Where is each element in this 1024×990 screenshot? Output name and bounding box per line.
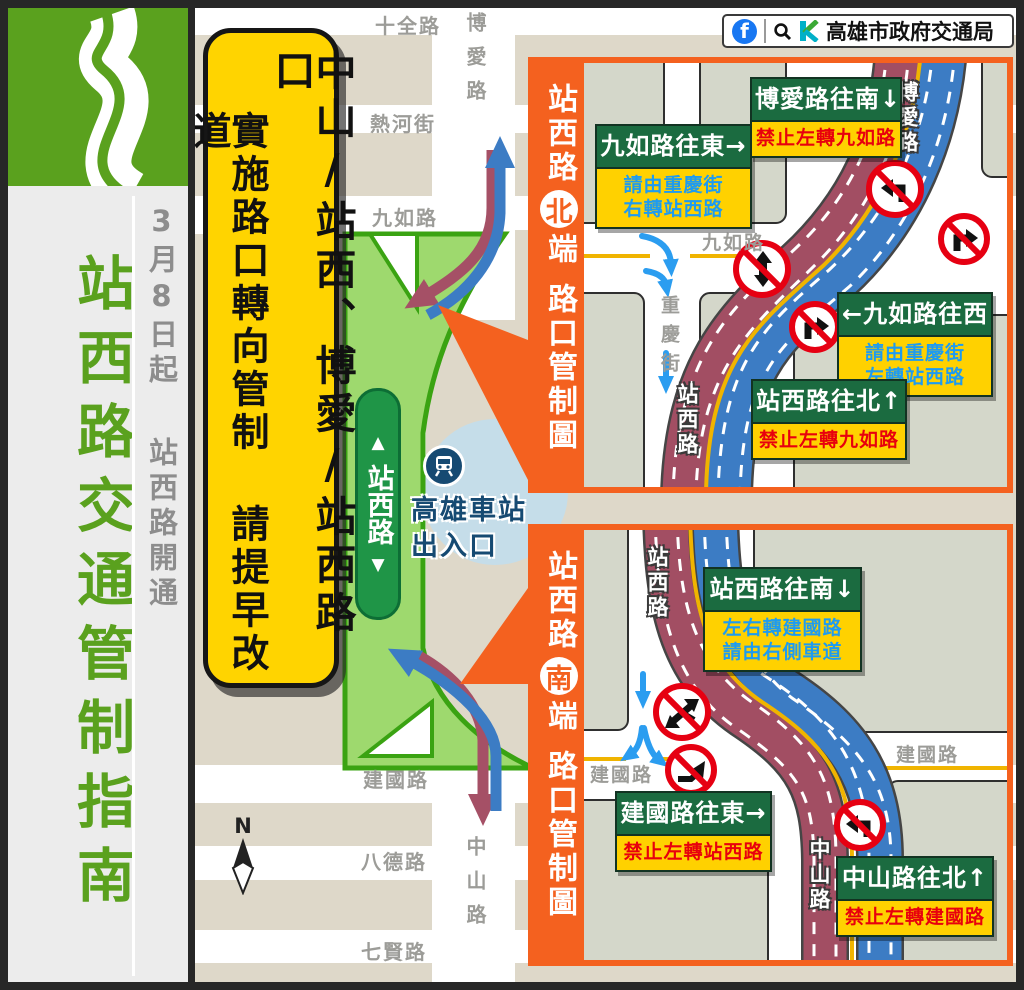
inset-south-circle-south: 南 [540, 657, 578, 695]
inset-south-suffix: 路口管制圖 [544, 750, 574, 920]
road-label-jiuru: 九如路 [372, 202, 438, 231]
south-jianguo-east-label: 建國路 [896, 740, 959, 767]
train-station-icon [423, 445, 465, 487]
inset-north-end: 端 [544, 233, 574, 267]
no-left-turn-sign-south [837, 802, 883, 848]
no-right-turn-sign [941, 216, 987, 262]
bureau-k-logo-icon [799, 20, 819, 42]
no-right-turn-sign-2 [792, 304, 838, 350]
sign-boai-south: 博愛路往南↓ 禁止左轉九如路 [750, 77, 902, 158]
agency-name: 高雄市政府交通局 [826, 16, 994, 46]
south-zhanxi-label: 站西路 [642, 546, 672, 621]
compass: N [221, 816, 265, 895]
inset-south-banner: 站西路 南 端 路口管制圖 [534, 530, 584, 960]
north-zhanxi-label: 站西路 [672, 383, 702, 458]
road-label-bade: 八德路 [361, 846, 427, 875]
south-zhongshan-label: 中山路 [804, 838, 834, 913]
zhanxi-sign-text: 站西路 [365, 464, 392, 545]
sign-jianguo-east: 建國路往東→ 禁止左轉站西路 [615, 791, 772, 872]
up-arrow-icon: ▲ [371, 435, 384, 452]
inset-north-road: 站西路 [544, 83, 574, 185]
road-label-boai: 博愛路 [461, 12, 490, 114]
road-label-rehe: 熱河街 [370, 108, 436, 137]
no-left-from-jianguo-sign [668, 747, 714, 793]
road-label-qixian: 七賢路 [361, 936, 427, 965]
station-label-line1: 高雄車站 [411, 488, 527, 527]
zhanxi-road-sign: ▲ 站西路 ▼ [355, 388, 401, 620]
notice-line-1: 中山/站西、博愛/站西路口 [270, 49, 352, 683]
inset-south-road: 站西路 [544, 550, 574, 652]
date-text: 3月8日起 [141, 204, 183, 389]
notice-banner: 中山/站西、博愛/站西路口 實施路口轉向管制 請提早改道 [203, 28, 339, 688]
inset-north-map: 九如路 重慶街 博愛路 站西路 九如路往東→ 請由重慶街 右轉站西路 博愛路往南… [584, 63, 1007, 487]
inset-north: 站西路 北 端 路口管制圖 [528, 57, 1013, 493]
inset-south-end: 端 [544, 700, 574, 734]
sign-zhanxi-south: 站西路往南↓ 左右轉建國路 請由右側車道 [703, 567, 862, 672]
compass-needle-icon [230, 837, 256, 895]
compass-n-label: N [234, 816, 252, 837]
road-label-jianguo: 建國路 [363, 764, 429, 793]
north-jiuru-label: 九如路 [702, 228, 765, 255]
inset-south: 站西路 南 端 路口管制圖 [528, 524, 1013, 966]
open-note-text: 站西路開通 [141, 437, 183, 612]
sidebar: 站西路交通管制指南 3月8日起 站西路開通 [8, 8, 188, 982]
header-divider [764, 19, 766, 43]
inset-north-circle-north: 北 [540, 190, 578, 228]
search-icon[interactable] [773, 22, 792, 41]
sign-zhanxi-north: 站西路往北↑ 禁止左轉九如路 [751, 379, 907, 460]
road-logo-icon [8, 8, 188, 186]
poster-title: 站西路交通管制指南 [8, 196, 130, 976]
date-note: 3月8日起 站西路開通 [135, 204, 188, 974]
north-chongqing-label: 重慶街 [656, 295, 683, 382]
south-jianguo-west-label: 建國路 [590, 760, 653, 787]
inset-north-banner: 站西路 北 端 路口管制圖 [534, 63, 584, 487]
sign-zhongshan-north: 中山路往北↑ 禁止左轉建國路 [836, 856, 994, 937]
station-label-line2: 出入口 [411, 524, 498, 563]
road-label-zhongshan: 中山路 [461, 836, 490, 938]
inset-north-suffix: 路口管制圖 [544, 283, 574, 453]
inset-south-map: 站西路 建國路 建國路 中山路 站西路往南↓ 左右轉建國路 請由右側車道 建國路… [584, 530, 1007, 960]
social-header: f 高雄市政府交通局 [722, 14, 1014, 48]
sign-jiuru-east: 九如路往東→ 請由重慶街 右轉站西路 [595, 124, 752, 229]
poster: 站西路交通管制指南 3月8日起 站西路開通 [0, 0, 1024, 990]
no-through-left-sign [656, 686, 708, 738]
road-label-shiquan: 十全路 [375, 10, 441, 39]
down-arrow-icon: ▼ [371, 557, 384, 574]
no-left-turn-sign [869, 163, 921, 215]
facebook-icon[interactable]: f [732, 19, 757, 44]
notice-line-2: 實施路口轉向管制 請提早改道 [190, 111, 266, 683]
